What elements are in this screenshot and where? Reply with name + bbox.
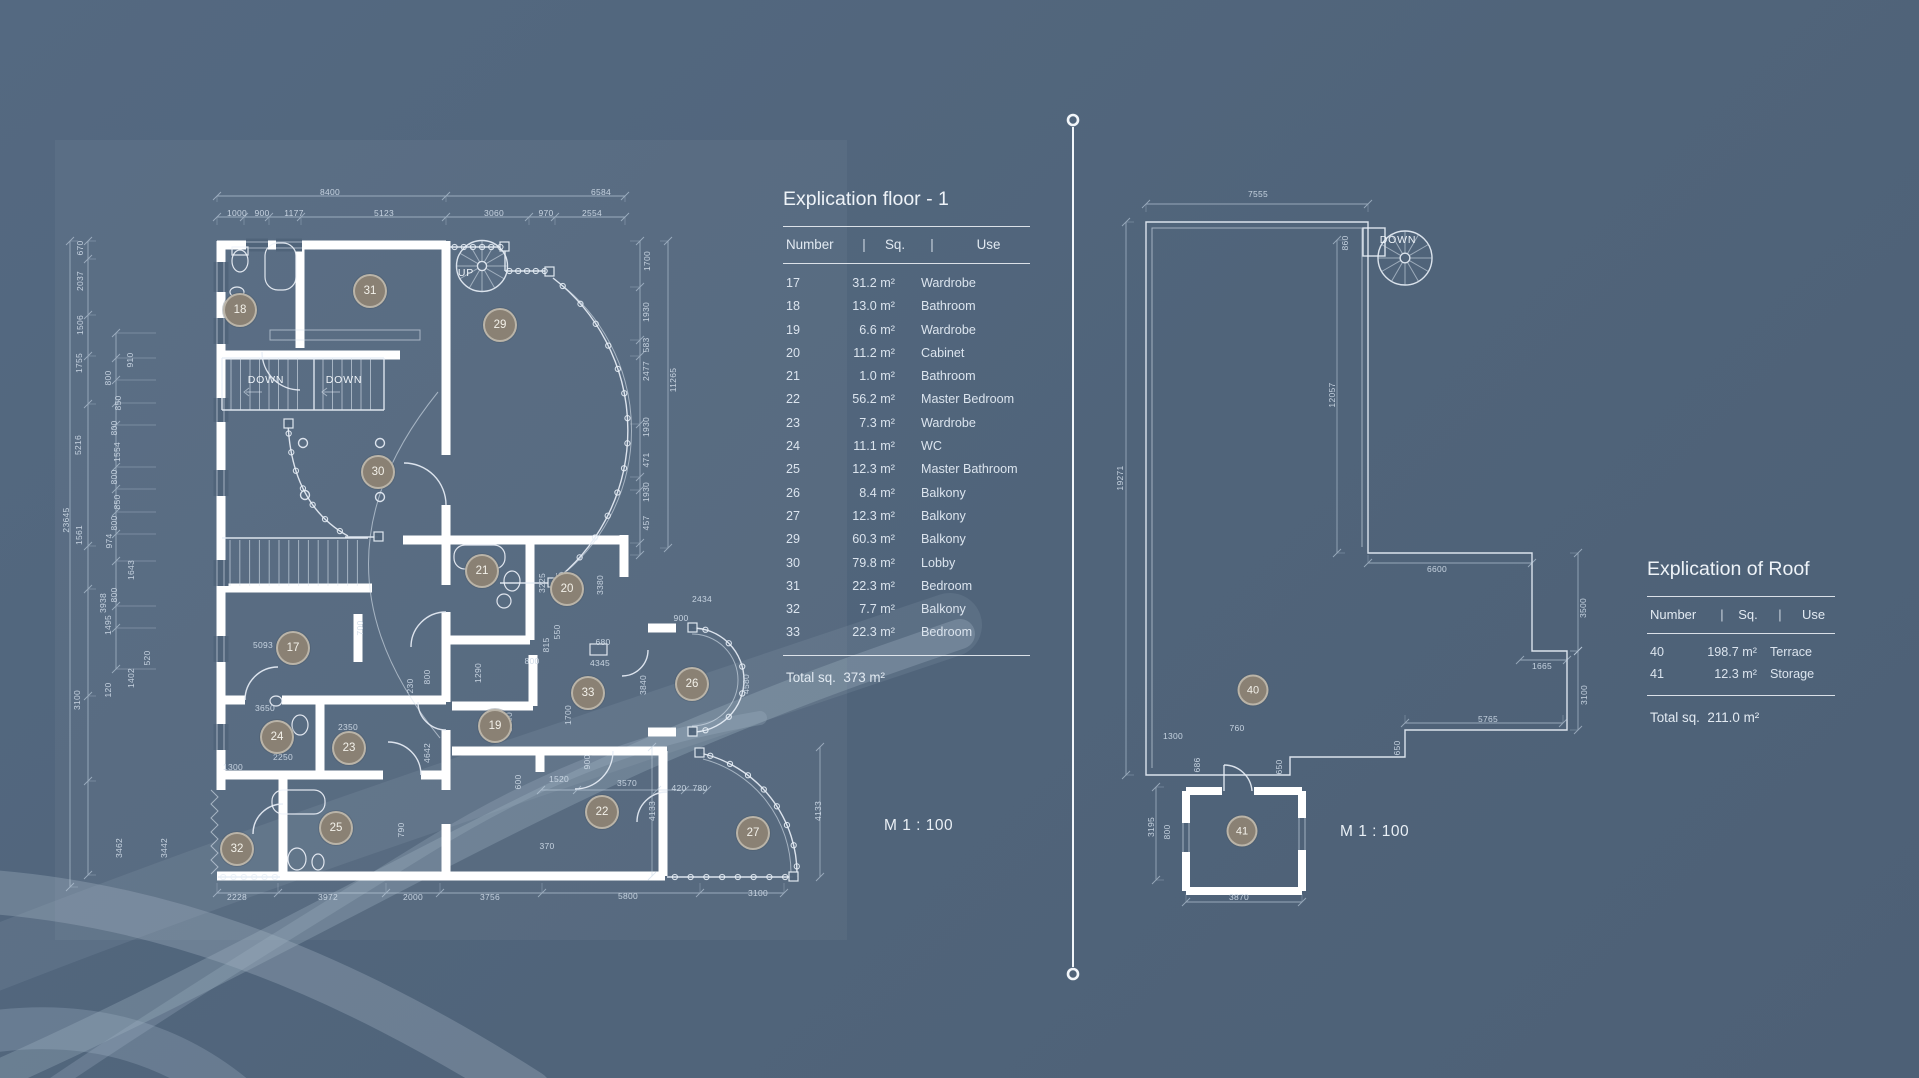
cell-sq: 12.3 m²: [1683, 664, 1757, 686]
room-badge: 25: [319, 811, 353, 845]
cell-number: 17: [783, 272, 823, 295]
cell-sq: 6.6 m²: [823, 319, 895, 342]
cell-number: 21: [783, 365, 823, 388]
cell-use: Balkony: [895, 482, 1030, 505]
cell-sq: 8.4 m²: [823, 482, 895, 505]
dimension-label: 3570: [617, 778, 637, 788]
dimension-label: 5093: [253, 640, 273, 650]
dimension-label: 1700: [642, 251, 652, 271]
room-badge: 40: [1238, 675, 1269, 706]
dimension-label: 12057: [1327, 382, 1337, 407]
dimension-label: 583: [641, 337, 651, 352]
table-row: 327.7 m²Balkony: [783, 598, 1030, 621]
cell-number: 26: [783, 482, 823, 505]
dimension-label: 3225: [537, 573, 547, 593]
dimension-label: 800: [524, 656, 539, 666]
dimension-label: 6600: [1427, 564, 1447, 574]
cell-use: Terrace: [1757, 642, 1835, 664]
floor-table-total: Total sq. 373 m²: [783, 655, 1030, 685]
cell-sq: 56.2 m²: [823, 388, 895, 411]
cell-number: 18: [783, 295, 823, 318]
dimension-label: 1665: [1532, 661, 1552, 671]
cell-sq: 12.3 m²: [823, 458, 895, 481]
dimension-label: 550: [552, 624, 562, 639]
section-divider: [1068, 115, 1078, 979]
dimension-label: 686: [1192, 757, 1202, 772]
dimension-label: 520: [142, 650, 152, 665]
dimension-label: 3650: [255, 703, 275, 713]
dimension-label: 800: [1162, 824, 1172, 839]
up-stair-label: UP: [458, 267, 474, 279]
table-row: 2011.2 m²Cabinet: [783, 342, 1030, 365]
cell-number: 24: [783, 435, 823, 458]
dimension-label: 23645: [61, 507, 71, 532]
dimension-label: 3380: [595, 575, 605, 595]
dimension-label: 19271: [1115, 465, 1125, 490]
dimension-label: 680: [595, 637, 610, 647]
dimension-label: 420: [671, 783, 686, 793]
dimension-label: 970: [538, 208, 553, 218]
room-badge: 32: [220, 832, 254, 866]
roof-outline: [1146, 222, 1567, 775]
cell-use: Storage: [1757, 664, 1835, 686]
dimension-label: 5765: [1478, 714, 1498, 724]
dimension-label: 800: [109, 587, 119, 602]
room-badge: 23: [332, 731, 366, 765]
dimension-label: 1643: [126, 560, 136, 580]
dimension-label: 1000: [227, 208, 247, 218]
dimension-label: 1554: [112, 442, 122, 462]
roof-table-rows: 40198.7 m²Terrace4112.3 m²Storage: [1647, 642, 1835, 685]
cell-use: Master Bedroom: [895, 388, 1030, 411]
room-badge: 31: [353, 274, 387, 308]
cell-number: 29: [783, 528, 823, 551]
floor-table-header: Number | Sq. | Use: [783, 227, 1030, 264]
dimension-label: 670: [75, 240, 85, 255]
col-number: Number: [1650, 607, 1716, 622]
dimension-label: 1177: [284, 208, 303, 218]
cell-use: Balkony: [895, 598, 1030, 621]
dimension-label: 3756: [480, 892, 500, 902]
dimension-label: 3870: [1229, 892, 1249, 902]
dimension-label: 900: [673, 613, 688, 623]
down-stair-label: DOWN: [1380, 234, 1416, 246]
room-badge: 20: [550, 572, 584, 606]
table-row: 2411.1 m²WC: [783, 435, 1030, 458]
cell-sq: 198.7 m²: [1683, 642, 1757, 664]
table-row: 3322.3 m²Bedroom: [783, 621, 1030, 644]
dimension-label: 815: [541, 637, 551, 652]
dimension-label: 4642: [422, 743, 432, 763]
cell-use: Bedroom: [895, 575, 1030, 598]
room-badge: 33: [571, 676, 605, 710]
table-row: 2256.2 m²Master Bedroom: [783, 388, 1030, 411]
col-sq: Sq.: [873, 237, 917, 252]
dimension-label: 4580: [741, 674, 751, 694]
col-use: Use: [1792, 607, 1835, 622]
cell-use: Balkony: [895, 528, 1030, 551]
dimension-label: 1930: [641, 302, 651, 322]
dimension-label: 7555: [1248, 189, 1268, 199]
blueprint-canvas: 8400658410009001177512330609702554170019…: [0, 0, 1919, 1078]
cell-use: WC: [895, 435, 1030, 458]
cell-sq: 22.3 m²: [823, 575, 895, 598]
dimension-label: 2434: [692, 594, 712, 604]
cell-sq: 13.0 m²: [823, 295, 895, 318]
dimension-label: 2000: [403, 892, 423, 902]
dimension-label: 910: [125, 352, 135, 367]
cell-sq: 7.7 m²: [823, 598, 895, 621]
cell-sq: 22.3 m²: [823, 621, 895, 644]
table-row: 2960.3 m²Balkony: [783, 528, 1030, 551]
down-stair-label: DOWN: [326, 374, 362, 386]
dimension-label: 1300: [223, 762, 243, 772]
col-number: Number: [786, 237, 855, 252]
dimension-label: 900: [582, 754, 592, 769]
dimension-label: 650: [1392, 740, 1402, 755]
dimension-label: 471: [641, 452, 651, 467]
room-badge: 19: [478, 709, 512, 743]
dimension-label: 4133: [647, 801, 657, 821]
room-badge: 26: [675, 667, 709, 701]
room-badge: 22: [585, 795, 619, 829]
roof-table-title: Explication of Roof: [1647, 556, 1835, 597]
dimension-label: 3938: [98, 593, 108, 613]
dimension-label: 1700: [563, 705, 573, 725]
dimension-label: 1930: [641, 417, 651, 437]
table-row: 2712.3 m²Balkony: [783, 505, 1030, 528]
room-badge: 24: [260, 720, 294, 754]
table-row: 211.0 m²Bathroom: [783, 365, 1030, 388]
cell-use: Balkony: [895, 505, 1030, 528]
dimension-label: 4133: [813, 801, 823, 821]
cell-number: 41: [1647, 664, 1683, 686]
cell-sq: 11.2 m²: [823, 342, 895, 365]
dimension-label: 650: [1274, 759, 1284, 774]
room-badge: 21: [465, 554, 499, 588]
cell-sq: 7.3 m²: [823, 412, 895, 435]
dimension-label: 2228: [227, 892, 247, 902]
table-row: 1813.0 m²Bathroom: [783, 295, 1030, 318]
dimension-label: 2554: [582, 208, 602, 218]
roof-plan: [1146, 222, 1567, 891]
dimension-label: 800: [109, 469, 119, 484]
cell-use: Wardrobe: [895, 272, 1030, 295]
roof-scale-label: M 1 : 100: [1340, 823, 1409, 841]
storage-door-arc: [1224, 765, 1252, 791]
dimension-label: 790: [396, 822, 406, 837]
floor-explication-table: Explication floor - 1 Number | Sq. | Use…: [783, 186, 1030, 685]
dimension-label: 1300: [1163, 731, 1183, 741]
dimension-label: 974: [104, 533, 114, 548]
dimension-label: 800: [103, 370, 113, 385]
cell-use: Master Bathroom: [895, 458, 1030, 481]
table-row: 2512.3 m²Master Bathroom: [783, 458, 1030, 481]
floor-table-rows: 1731.2 m²Wardrobe1813.0 m²Bathroom196.6 …: [783, 272, 1030, 645]
cell-number: 19: [783, 319, 823, 342]
dimension-label: 1290: [473, 663, 483, 683]
cell-sq: 79.8 m²: [823, 552, 895, 575]
cell-use: Bathroom: [895, 365, 1030, 388]
roof-table-total: Total sq. 211.0 m²: [1647, 695, 1835, 725]
table-row: 4112.3 m²Storage: [1647, 664, 1835, 686]
table-row: 237.3 m²Wardrobe: [783, 412, 1030, 435]
dimension-label: 850: [113, 395, 123, 410]
dimension-label: 1402: [126, 668, 136, 688]
room-badge: 27: [736, 816, 770, 850]
table-row: 196.6 m²Wardrobe: [783, 319, 1030, 342]
table-row: 3122.3 m²Bedroom: [783, 575, 1030, 598]
dimension-label: 1506: [75, 315, 85, 335]
room-badge: 18: [223, 293, 257, 327]
cell-sq: 11.1 m²: [823, 435, 895, 458]
cell-number: 23: [783, 412, 823, 435]
cell-use: Cabinet: [895, 342, 1030, 365]
dimension-label: 860: [1340, 235, 1350, 250]
floor-table-title: Explication floor - 1: [783, 186, 1030, 227]
dimension-label: 6584: [591, 187, 611, 197]
dimension-label: 4345: [590, 658, 610, 668]
dimension-label: 900: [254, 208, 269, 218]
table-row: 40198.7 m²Terrace: [1647, 642, 1835, 664]
cell-use: Wardrobe: [895, 319, 1030, 342]
room-badge: 41: [1227, 816, 1258, 847]
dimension-label: 457: [641, 515, 651, 530]
dimension-label: 3840: [638, 675, 648, 695]
dimension-label: 230: [405, 678, 415, 693]
dimension-label: 800: [109, 420, 119, 435]
cell-sq: 60.3 m²: [823, 528, 895, 551]
dimension-label: 3100: [1579, 685, 1589, 705]
floor-scale-label: M 1 : 100: [884, 817, 953, 835]
dimension-label: 3462: [114, 838, 124, 858]
table-row: 268.4 m²Balkony: [783, 482, 1030, 505]
dimension-label: 3500: [1578, 598, 1588, 618]
room-badge: 17: [276, 631, 310, 665]
dimension-label: 5123: [374, 208, 394, 218]
cell-number: 33: [783, 621, 823, 644]
cell-number: 20: [783, 342, 823, 365]
dimension-label: 3100: [72, 690, 82, 710]
cell-sq: 1.0 m²: [823, 365, 895, 388]
cell-number: 22: [783, 388, 823, 411]
room-badge: 29: [483, 308, 517, 342]
dimension-label: 1561: [74, 525, 84, 545]
dimension-label: 120: [103, 682, 113, 697]
cell-number: 27: [783, 505, 823, 528]
cell-use: Wardrobe: [895, 412, 1030, 435]
col-use: Use: [947, 237, 1030, 252]
dimension-label: 850: [112, 494, 122, 509]
dimension-label: 800: [109, 515, 119, 530]
dimension-label: 5216: [73, 435, 83, 455]
dimension-label: 8400: [320, 187, 340, 197]
col-sq: Sq.: [1728, 607, 1768, 622]
dimension-label: 800: [422, 669, 432, 684]
dimension-label: 370: [539, 841, 554, 851]
dimension-label: 3100: [748, 888, 768, 898]
dimension-label: 780: [692, 783, 707, 793]
dimension-label: 2477: [641, 361, 651, 381]
dimension-label: 5800: [618, 891, 638, 901]
dimension-label: 11265: [668, 368, 678, 393]
cell-number: 25: [783, 458, 823, 481]
dimension-label: 1930: [641, 482, 651, 502]
cell-number: 31: [783, 575, 823, 598]
cell-sq: 12.3 m²: [823, 505, 895, 528]
dimension-label: 600: [513, 774, 523, 789]
table-row: 3079.8 m²Lobby: [783, 552, 1030, 575]
down-stair-label: DOWN: [248, 374, 284, 386]
dimension-label: 760: [1229, 723, 1244, 733]
dimension-label: 1520: [549, 774, 569, 784]
cell-use: Bedroom: [895, 621, 1030, 644]
cell-number: 40: [1647, 642, 1683, 664]
cell-number: 32: [783, 598, 823, 621]
table-row: 1731.2 m²Wardrobe: [783, 272, 1030, 295]
cell-use: Bathroom: [895, 295, 1030, 318]
dimension-label: 3972: [318, 892, 338, 902]
roof-table-header: Number | Sq. | Use: [1647, 597, 1835, 634]
dimension-label: 1495: [103, 615, 113, 635]
dimension-label: 1755: [74, 353, 84, 373]
dimension-label: 3442: [159, 838, 169, 858]
dimension-label: 3195: [1146, 817, 1156, 837]
roof-explication-table: Explication of Roof Number | Sq. | Use 4…: [1647, 556, 1835, 725]
dimension-label: 700: [355, 620, 365, 635]
cell-sq: 31.2 m²: [823, 272, 895, 295]
cell-number: 30: [783, 552, 823, 575]
cell-use: Lobby: [895, 552, 1030, 575]
room-badge: 30: [361, 455, 395, 489]
dimension-label: 3060: [484, 208, 504, 218]
dimension-label: 2037: [75, 271, 85, 291]
